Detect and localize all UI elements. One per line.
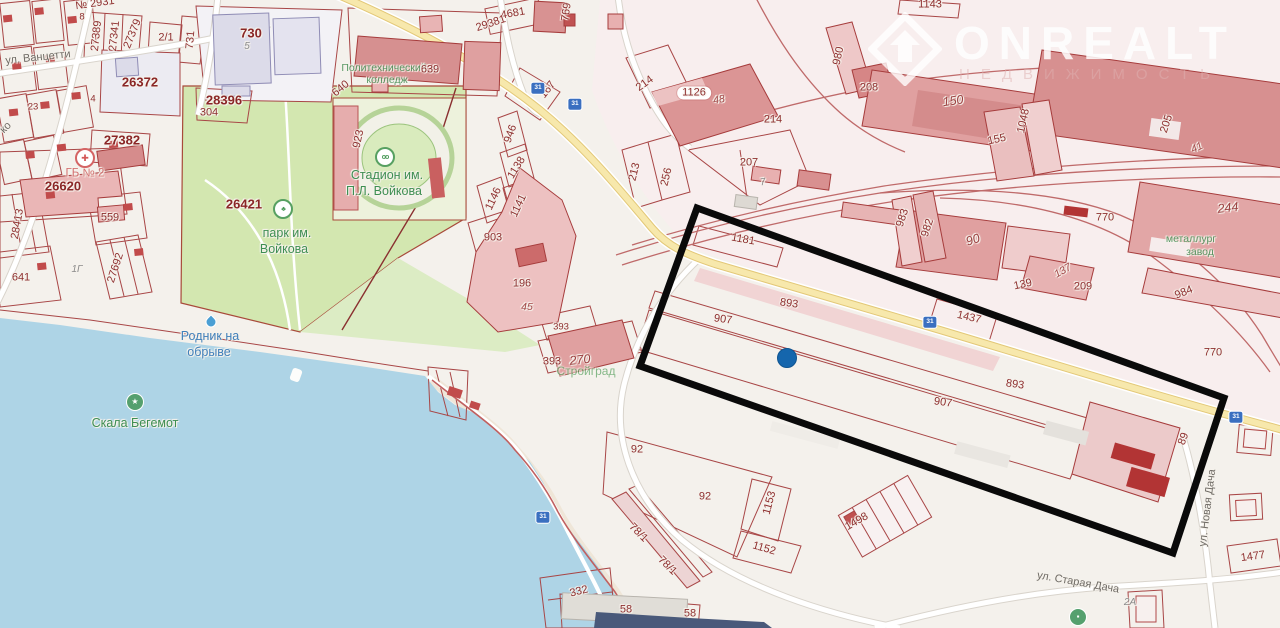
stadium (334, 106, 452, 210)
location-marker[interactable] (778, 349, 797, 368)
map-viewport[interactable]: ONREALT НЕДВИЖИМОСТЬ № 29318273892734127… (0, 0, 1280, 628)
map-canvas (0, 0, 1280, 628)
